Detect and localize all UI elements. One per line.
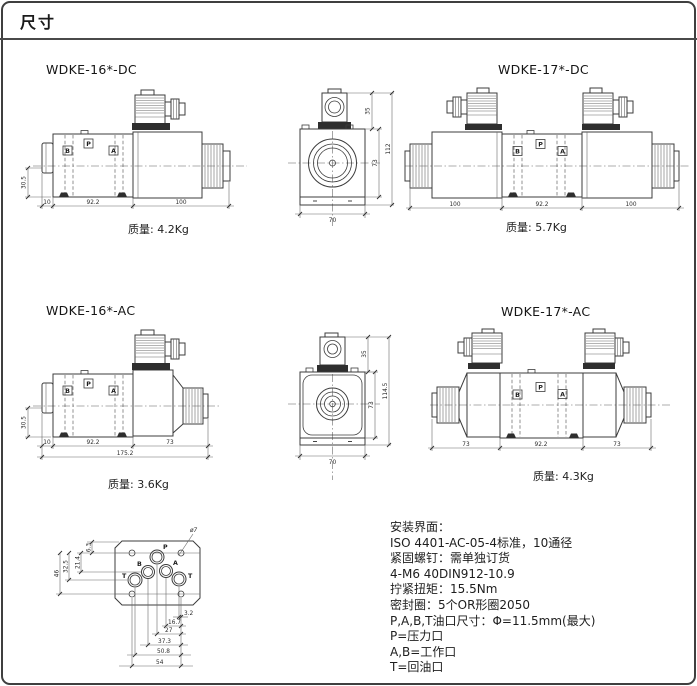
- title-divider: [0, 38, 697, 40]
- note-line: P,A,B,T油口尺寸：Φ=11.5mm(最大): [390, 614, 690, 630]
- dim-label-30-5: 30.5: [22, 416, 28, 429]
- drawing-dc-end-view: 35 73 112 70: [285, 80, 400, 235]
- port-symbol-b: B: [63, 146, 72, 155]
- dim-label-27: 27: [165, 628, 173, 634]
- dim-label-100-right: 100: [625, 202, 636, 208]
- port-symbol-a: A: [109, 386, 118, 395]
- port-label-a: A: [173, 560, 178, 567]
- dim-label-32-5: 32.5: [64, 560, 70, 573]
- port-symbol-p: P: [536, 140, 545, 149]
- dimension-right: 35 73 112: [347, 91, 394, 207]
- port-symbol-b: B: [513, 390, 522, 399]
- dim-label-73: 73: [166, 440, 174, 446]
- dim-label-73-right: 73: [613, 442, 621, 448]
- drawing-wdke-17-dc: B P A: [405, 55, 695, 240]
- port-label-t-left: T: [122, 573, 127, 580]
- port-label-p: P: [86, 381, 91, 388]
- dim-label-175-2: 175.2: [117, 451, 134, 457]
- note-line: 4-M6 40DIN912-10.9: [390, 567, 690, 583]
- dim-label-46: 46: [55, 570, 61, 578]
- weight-ac16: 质量: 3.6Kg: [108, 476, 169, 492]
- din-connector-right: [582, 88, 633, 130]
- din-connector-left: [458, 329, 502, 369]
- port-t-right: T: [172, 572, 193, 586]
- drawing-wdke-16-ac: B P A: [15, 295, 275, 490]
- port-b: B: [137, 561, 155, 579]
- port-p: P: [150, 544, 168, 564]
- dim-label-92-2: 92.2: [536, 202, 549, 208]
- note-line: P=压力口: [390, 629, 690, 645]
- port-label-b: B: [515, 392, 520, 399]
- dim-label-10: 10: [43, 200, 51, 206]
- mounting-notes: 安装界面： ISO 4401-AC-05-4标准，10通径 紧固螺钉：需单独订货…: [390, 520, 690, 676]
- dim-label-35: 35: [366, 107, 372, 115]
- dim-label-16-7: 16.7: [168, 620, 181, 626]
- note-line: T=回油口: [390, 660, 690, 676]
- dim-label-114-5: 114.5: [383, 382, 389, 399]
- port-label-p: P: [538, 142, 543, 149]
- dim-label-35: 35: [362, 350, 368, 358]
- port-symbol-p: P: [84, 379, 93, 388]
- dim-label-70: 70: [329, 218, 337, 224]
- din-connector: [132, 90, 185, 130]
- dimension-bottom: 10 92.2 100: [37, 173, 234, 209]
- drawing-ac-end-view: 35 73 114.5 70: [280, 330, 410, 490]
- dim-label-73-left: 73: [462, 442, 470, 448]
- dim-label-54: 54: [156, 660, 164, 666]
- weight-ac17: 质量: 4.3Kg: [533, 468, 594, 484]
- dim-label-37-3: 37.3: [158, 639, 171, 645]
- dim-label-112: 112: [386, 143, 392, 154]
- port-symbol-p: P: [84, 139, 93, 148]
- dim-label-6-3: 6.3: [87, 543, 93, 553]
- dimensions-left: 6.3 21.4 32.5 46: [55, 540, 142, 596]
- port-label-a: A: [560, 392, 565, 399]
- port-symbol-b: B: [63, 386, 72, 395]
- port-label-b: B: [137, 561, 142, 568]
- dimension-30-5: 30.5: [22, 166, 52, 199]
- note-line: ISO 4401-AC-05-4标准，10通径: [390, 536, 690, 552]
- port-label-p: P: [163, 544, 168, 551]
- dim-label-10: 10: [43, 440, 51, 446]
- dim-label-30-5: 30.5: [22, 176, 28, 189]
- weight-dc17: 质量: 5.7Kg: [506, 219, 567, 235]
- port-symbol-a: A: [558, 390, 567, 399]
- port-label-p: P: [538, 385, 543, 392]
- port-label-a: A: [111, 148, 116, 155]
- din-connector-left: [447, 88, 502, 130]
- port-label-a: A: [111, 388, 116, 395]
- dim-label-100: 100: [175, 200, 186, 206]
- dimension-30-5: 30.5: [22, 406, 52, 439]
- catalog-page: 尺寸 WDKE-16*-DC WDKE-17*-DC WDKE-16*-AC W…: [0, 0, 697, 686]
- port-symbol-a: A: [558, 147, 567, 156]
- page-title: 尺寸: [20, 9, 56, 33]
- drawing-mounting-interface: P B A T T ø7 6.3: [35, 513, 235, 683]
- dim-label-3-2: 3.2: [184, 611, 194, 617]
- dim-label-92-2: 92.2: [87, 440, 100, 446]
- dim-label-73: 73: [369, 401, 375, 409]
- port-label-a: A: [560, 149, 565, 156]
- note-line: A,B=工作口: [390, 645, 690, 661]
- port-label-p: P: [86, 141, 91, 148]
- note-line: 拧紧扭矩：15.5Nm: [390, 582, 690, 598]
- dim-label-92-2: 92.2: [87, 200, 100, 206]
- dim-label-73: 73: [373, 159, 379, 167]
- port-symbol-p: P: [536, 383, 545, 392]
- din-connector: [132, 330, 185, 370]
- drawing-wdke-17-ac: B P A: [430, 300, 695, 480]
- port-label-b: B: [65, 148, 70, 155]
- note-line: 紧固螺钉：需单独订货: [390, 551, 690, 567]
- note-line: 安装界面：: [390, 520, 690, 536]
- port-symbol-b: B: [513, 147, 522, 156]
- dim-label-92-2: 92.2: [535, 442, 548, 448]
- note-line: 密封圈：5个OR形圈2050: [390, 598, 690, 614]
- weight-dc16: 质量: 4.2Kg: [128, 221, 189, 237]
- port-symbol-a: A: [109, 146, 118, 155]
- port-label-b: B: [65, 388, 70, 395]
- dimension-right: 35 73 114.5: [345, 335, 391, 447]
- dim-label-21-4: 21.4: [76, 556, 82, 569]
- dim-label-100-left: 100: [449, 202, 460, 208]
- dim-label-70: 70: [329, 460, 337, 466]
- drawing-wdke-16-dc: B P A: [15, 55, 265, 240]
- port-label-b: B: [515, 149, 520, 156]
- dim-label-hole-diameter: ø7: [189, 528, 198, 534]
- port-a: A: [160, 560, 179, 578]
- port-label-t-right: T: [188, 573, 193, 580]
- dim-label-50-8: 50.8: [157, 649, 170, 655]
- din-connector-right: [583, 329, 629, 369]
